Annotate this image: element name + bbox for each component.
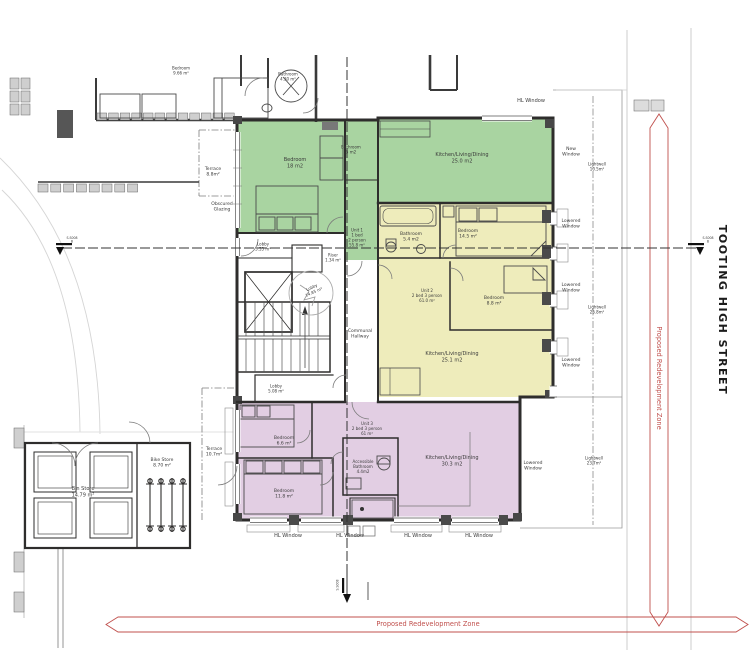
unit2-tag: Unit 22 bed 3 person61.0 m² xyxy=(412,289,442,304)
street-name-label: TOOTING HIGH STREET xyxy=(715,225,729,395)
bike-store-label: Bike Store8.70 m² xyxy=(151,457,174,468)
terrace-upper-label: Terrace8.8m² xyxy=(205,166,221,177)
u2-bedroom1-label: Bedroom14.5 m² xyxy=(458,228,478,239)
new-window-label: NewWindow xyxy=(562,146,580,157)
lowered-window-1-label: LoweredWindow xyxy=(561,218,580,229)
floor-plan-drawing: Bedroom9.66 m² Bathroom4.30 m² Bedroom18… xyxy=(0,0,750,650)
neighbour-bathroom-label: Bathroom4.30 m² xyxy=(278,72,298,82)
hl-window-bottom-3-label: HL Window xyxy=(404,533,432,539)
lobby-entrance-label: Lobby3.55 m² xyxy=(255,242,271,252)
riser-label: Riser1.34 m² xyxy=(325,253,341,263)
u1-kitchen-label: Kitchen/Living/Dining25.0 m2 xyxy=(435,152,488,165)
lightwell-2-label: Lightwell25.8m² xyxy=(588,305,606,315)
section-arrow-left xyxy=(56,247,64,255)
lightwell-3-label: Lightwell23.7m² xyxy=(585,456,603,466)
lowered-window-2-label: LoweredWindow xyxy=(561,282,580,293)
obscured-glazing-label: ObscuredGlazing xyxy=(211,201,232,212)
unit1-bedroom-fill xyxy=(237,120,345,233)
u3-bathroom-label: AccessibleBathroom4.4m2 xyxy=(353,460,374,475)
u2-bedroom2-label: Bedroom8.8 m² xyxy=(484,295,504,306)
lobby-lower-label: Lobby5.08 m² xyxy=(268,384,284,394)
neighbour-bedroom-label: Bedroom9.66 m² xyxy=(172,66,190,76)
zone-label-horizontal: Proposed Redevelopment Zone xyxy=(376,620,479,628)
hl-window-top-label: HL Window xyxy=(517,98,545,104)
unit3-tag: Unit 32 bed 3 person61 m² xyxy=(352,422,382,437)
section-marker-left: S.S008B xyxy=(66,237,77,244)
party-wall-hatch xyxy=(10,78,234,612)
communal-hallway-label: CommunalHallway xyxy=(348,328,372,339)
u2-bathroom-label: Bathroom5.4 m2 xyxy=(400,231,422,242)
bin-store-label: Bin Store14.79 m² xyxy=(72,486,95,499)
u1-bathroom-label: Bathroom5 m2 xyxy=(341,145,361,155)
section-marker-bottom: S.S008 xyxy=(336,579,340,590)
hl-window-bottom-4-label: HL Window xyxy=(465,533,493,539)
lowered-window-3-label: LoweredWindow xyxy=(561,357,580,368)
section-arrow-bottom xyxy=(343,594,351,603)
hl-window-bottom-1-label: HL Window xyxy=(274,533,302,539)
stairs xyxy=(237,302,330,372)
u3-bedroom2-label: Bedroom11.8 m² xyxy=(274,488,294,499)
u2-kitchen-label: Kitchen/Living/Dining25.1 m2 xyxy=(425,351,478,364)
hl-window-bottom-2-label: HL Window xyxy=(336,533,364,539)
bike-symbols xyxy=(146,478,187,532)
lightwell-1-label: Lightwell10.5m² xyxy=(588,162,606,172)
u3-kitchen-label: Kitchen/Living/Dining30.3 m2 xyxy=(425,455,478,468)
terrace-lower-label: Terrace10.7m² xyxy=(206,446,222,457)
section-arrow-right xyxy=(696,247,704,255)
u3-bedroom1-label: Bedroom6.6 m² xyxy=(274,435,294,446)
floorplan-linework xyxy=(0,0,750,650)
u1-bedroom-label: Bedroom18 m2 xyxy=(284,157,307,170)
section-marker-right: S.S008B xyxy=(702,237,713,244)
lowered-window-4-label: LoweredWindow xyxy=(523,460,542,471)
zone-label-vertical: Proposed Redevelopment Zone xyxy=(655,326,663,429)
unit1-tag: Unit 11 bed2 person55.8 m² xyxy=(348,228,366,248)
